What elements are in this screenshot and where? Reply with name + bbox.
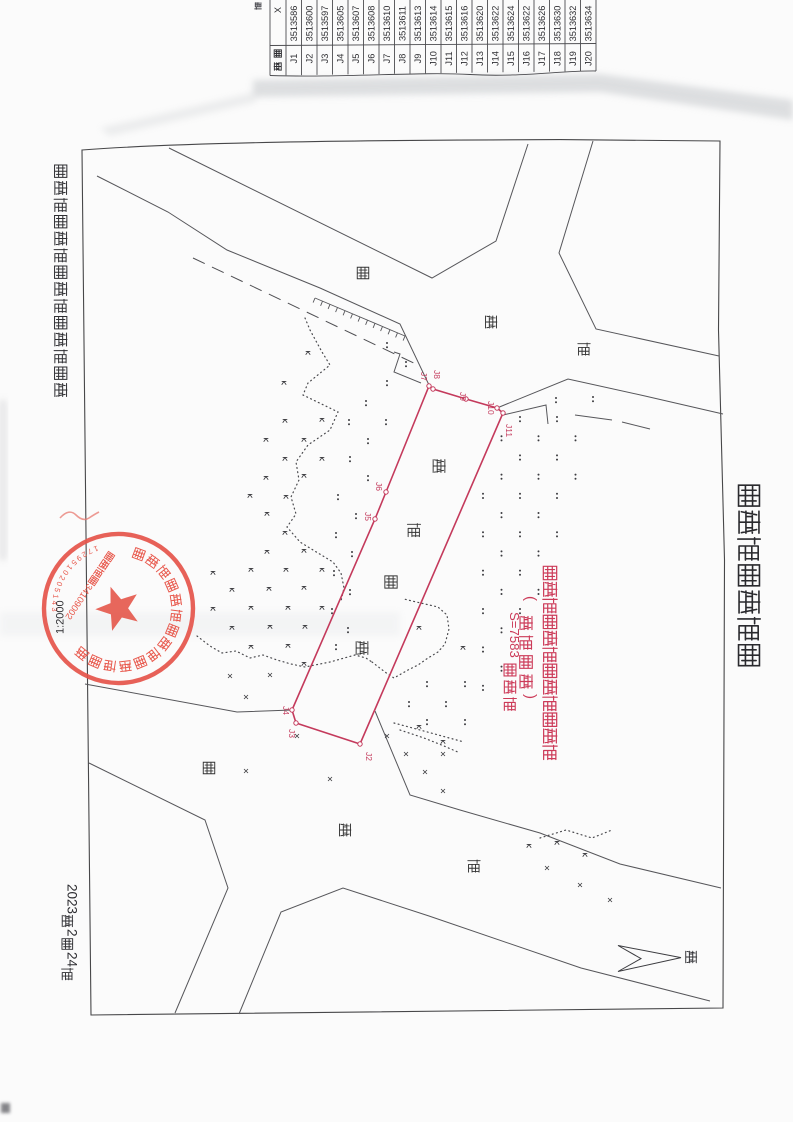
svg-text:24: 24 (64, 952, 79, 968)
svg-text:3513600: 3513600 (304, 6, 314, 42)
svg-text:J4: J4 (336, 54, 346, 64)
svg-text:2: 2 (64, 929, 79, 937)
svg-text:3513622: 3513622 (521, 6, 531, 42)
svg-text:J15: J15 (506, 51, 516, 66)
svg-text:J5: J5 (363, 512, 373, 521)
svg-text:3513634: 3513634 (583, 6, 593, 42)
svg-text:3513624: 3513624 (506, 6, 516, 42)
svg-text:): ) (522, 694, 539, 699)
svg-text:3513608: 3513608 (366, 6, 376, 42)
svg-text:J16: J16 (522, 51, 532, 66)
svg-text:J6: J6 (374, 482, 384, 491)
svg-text:J11: J11 (504, 424, 514, 437)
svg-text:2023: 2023 (64, 884, 79, 914)
svg-text:3513613: 3513613 (413, 6, 423, 42)
svg-text:J13: J13 (475, 51, 485, 66)
svg-text:3513586: 3513586 (289, 6, 299, 42)
svg-text:J9: J9 (413, 54, 423, 64)
svg-text:S=7583: S=7583 (507, 612, 522, 658)
svg-text:(: ( (522, 596, 539, 601)
svg-text:J17: J17 (537, 51, 547, 66)
svg-text:3513607: 3513607 (351, 6, 361, 42)
svg-text:3513616: 3513616 (459, 6, 469, 42)
svg-text:J14: J14 (491, 51, 501, 66)
svg-text:J8: J8 (432, 370, 442, 379)
svg-text:3513610: 3513610 (382, 6, 392, 42)
svg-text:J4: J4 (281, 706, 291, 715)
svg-text:J6: J6 (367, 54, 377, 64)
svg-text:J12: J12 (460, 51, 470, 66)
svg-text:J8: J8 (398, 54, 408, 64)
svg-text:3513615: 3513615 (444, 6, 454, 42)
svg-text:J3: J3 (320, 54, 330, 64)
svg-text:3513632: 3513632 (568, 6, 578, 42)
svg-text:3513622: 3513622 (490, 6, 500, 42)
svg-text:J18: J18 (553, 51, 563, 66)
svg-text:3513614: 3513614 (428, 6, 438, 42)
svg-text:3513630: 3513630 (552, 6, 562, 42)
svg-text:3513611: 3513611 (397, 6, 407, 41)
svg-text:J19: J19 (568, 51, 578, 66)
svg-text:X: X (273, 7, 283, 13)
svg-text:J7: J7 (382, 54, 392, 64)
svg-text:3513620: 3513620 (475, 6, 485, 42)
svg-text:J1: J1 (289, 54, 299, 64)
svg-text:J20: J20 (584, 51, 594, 66)
svg-text:J2: J2 (364, 752, 374, 761)
svg-text:3513605: 3513605 (335, 6, 345, 42)
svg-text:1:2000: 1:2000 (55, 600, 67, 634)
svg-text:J7: J7 (419, 372, 429, 381)
svg-text:3513626: 3513626 (537, 6, 547, 42)
svg-text:J2: J2 (305, 54, 315, 64)
svg-text:3513597: 3513597 (320, 6, 330, 42)
svg-text:J10: J10 (486, 401, 496, 415)
svg-text:J3: J3 (287, 729, 297, 738)
svg-text:J5: J5 (351, 54, 361, 64)
svg-text:J10: J10 (429, 51, 439, 66)
svg-text:J9: J9 (458, 392, 468, 401)
svg-text:J11: J11 (444, 51, 454, 65)
